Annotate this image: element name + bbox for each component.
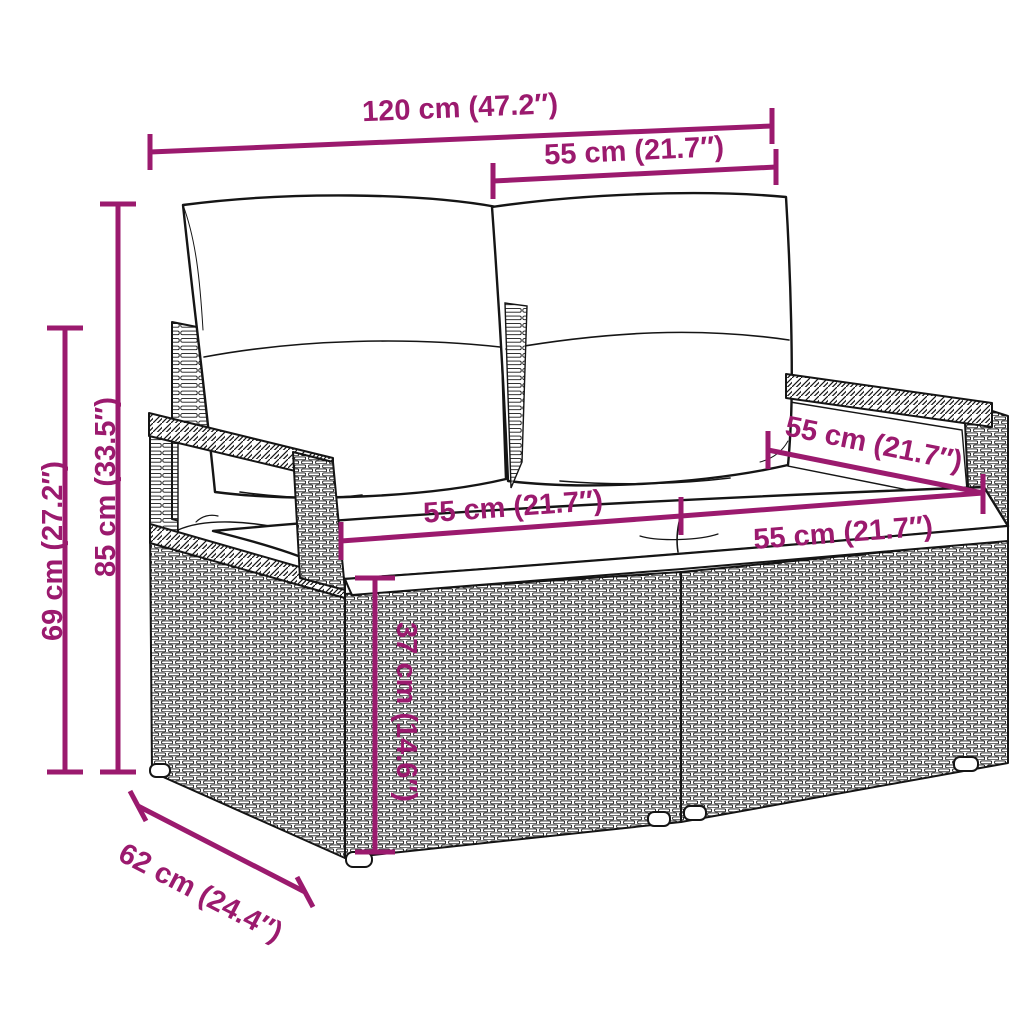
dim-armrest-height-label: 69 cm (27.2″) [37, 461, 69, 641]
sofa-foot [648, 812, 670, 826]
dim-depth-label: 62 cm (24.4″) [113, 837, 287, 948]
dim-total-height-label: 85 cm (33.5″) [90, 397, 122, 577]
dim-seat-height-label: 37 cm (14.6″) [390, 622, 422, 802]
dim-total-height: 85 cm (33.5″) [90, 204, 136, 772]
sofa-foot [954, 757, 978, 771]
garden-sofa-dimension-diagram: 120 cm (47.2″) 55 cm (21.7″) 85 cm (33.5… [0, 0, 1024, 1024]
dim-overall-width-label: 120 cm (47.2″) [361, 88, 558, 128]
back-cushion-right [492, 193, 792, 485]
sofa-foot [150, 764, 170, 777]
dim-armrest-height: 69 cm (27.2″) [37, 328, 83, 772]
dimension-diagram-canvas: 120 cm (47.2″) 55 cm (21.7″) 85 cm (33.5… [0, 0, 1024, 1024]
dim-backrest-width-line [493, 167, 776, 181]
sofa-foot [684, 806, 706, 820]
sofa-base-right-module [681, 540, 1008, 822]
dim-backrest-width: 55 cm (21.7″) [493, 131, 776, 199]
